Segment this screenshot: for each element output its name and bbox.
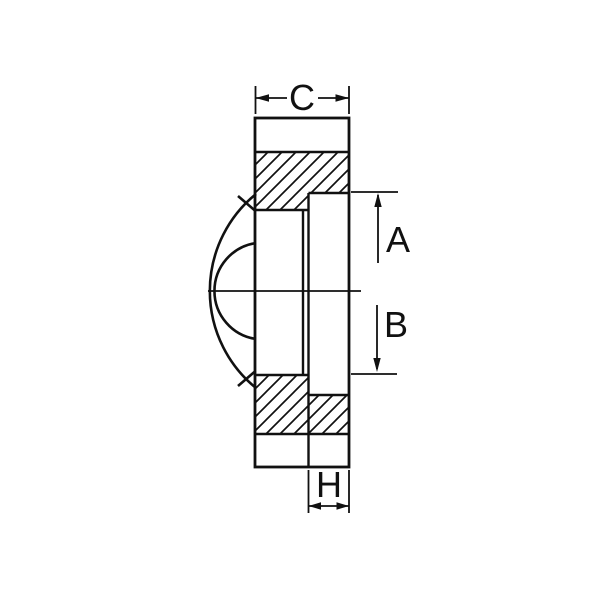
dimension-label-b: B bbox=[384, 304, 408, 345]
dimension-label-a: A bbox=[386, 219, 410, 260]
cross-section-drawing: C A B H bbox=[0, 0, 600, 600]
arrowhead-up bbox=[374, 193, 381, 207]
technical-drawing-page: C A B H bbox=[0, 0, 600, 600]
arrowhead-right bbox=[336, 94, 350, 101]
arrowhead-left bbox=[256, 94, 270, 101]
dimension-label-c: C bbox=[289, 77, 315, 118]
section-hatch-top bbox=[255, 152, 349, 210]
dimension-label-h: H bbox=[316, 464, 342, 505]
arrowhead-down bbox=[373, 358, 380, 372]
section-hatch-bottom bbox=[255, 375, 349, 434]
